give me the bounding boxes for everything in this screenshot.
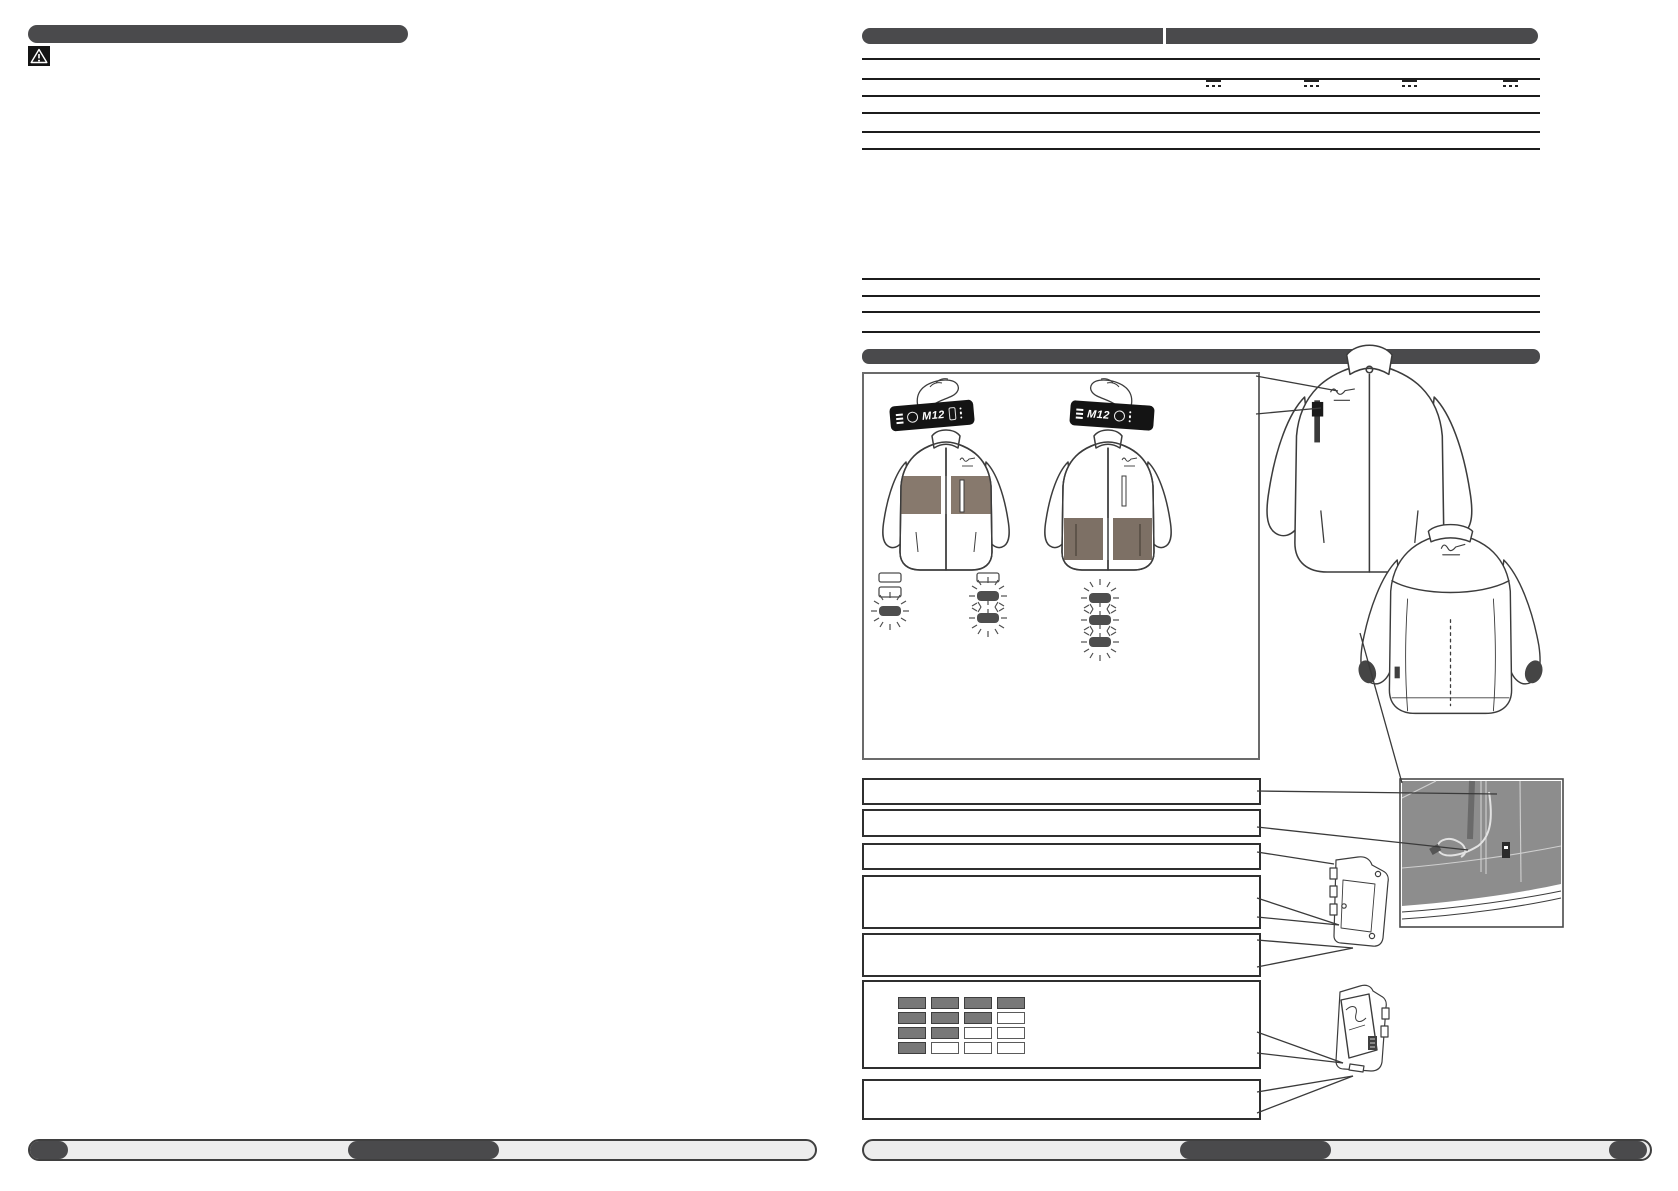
left-footer-mid-pill: [348, 1141, 499, 1159]
led-cell: [997, 1012, 1025, 1024]
figure-box: [862, 372, 1260, 760]
table-rule: [862, 148, 1540, 150]
led-cell: [898, 1027, 926, 1039]
led-cell: [964, 1027, 992, 1039]
led-cell: [964, 1012, 992, 1024]
warning-triangle-icon: [28, 46, 50, 66]
right-footer-end-pill: [1609, 1141, 1647, 1159]
table-rule: [862, 295, 1540, 297]
led-cell: [997, 997, 1025, 1009]
led-cell: [964, 1042, 992, 1054]
battery-gauge-icon: [1076, 408, 1084, 418]
milwaukee-logo-icon: [1331, 389, 1355, 394]
table-rule: [862, 58, 1540, 60]
led-grid: [898, 997, 1025, 1054]
dc-voltage-symbol: [1402, 80, 1417, 90]
leader-lines: [1256, 376, 1497, 1113]
m12-logo: M12: [922, 408, 946, 422]
cord-plug-icon: [1429, 844, 1441, 855]
callout-box-5: [862, 933, 1261, 977]
table-rule: [862, 278, 1540, 280]
led-cell: [997, 1042, 1025, 1054]
left-page-title-bar: [28, 25, 408, 43]
m12-logo: M12: [1087, 408, 1111, 422]
led-cell: [931, 1012, 959, 1024]
right-page-header-bar-left: [862, 28, 1163, 44]
led-cell: [931, 1042, 959, 1054]
led-cell: [931, 997, 959, 1009]
m12-tag-icon: [1368, 1036, 1377, 1050]
milwaukee-logo-icon: [1441, 544, 1464, 550]
left-footer-end-pill: [30, 1141, 68, 1159]
table-rule: [862, 311, 1540, 313]
figure-artwork: [0, 0, 1678, 1191]
controller-in-pocket-icon: [1312, 402, 1323, 417]
led-cell: [931, 1027, 959, 1039]
jacket-front-large: [1267, 345, 1472, 572]
inner-pocket-detail-panel: [1400, 779, 1563, 927]
table-rule: [862, 95, 1540, 97]
power-cord-icon: [1438, 792, 1491, 857]
callout-box-1: [862, 778, 1261, 805]
led-cell: [898, 1042, 926, 1054]
milwaukee-logo-icon: [1346, 1007, 1366, 1022]
power-button-icon: [907, 411, 919, 423]
led-dots-icon: [959, 407, 962, 419]
cuff-dark-right: [1522, 658, 1545, 685]
battery-gauge-icon: [896, 413, 904, 424]
callout-box-4: [862, 875, 1261, 929]
indicator-window-icon: [948, 407, 956, 421]
led-cell: [997, 1027, 1025, 1039]
connector-icon: [1502, 842, 1510, 858]
led-cell: [898, 1012, 926, 1024]
led-cell: [898, 997, 926, 1009]
jacket-back: [1356, 525, 1546, 714]
led-dots-icon: [1128, 411, 1131, 423]
callout-box-3: [862, 843, 1261, 870]
callout-box-7: [862, 1079, 1261, 1120]
callout-box-2: [862, 809, 1261, 837]
led-cell: [964, 997, 992, 1009]
manual-spread: M12 M12: [0, 0, 1678, 1191]
table-rule: [862, 112, 1540, 114]
cuff-dark-left: [1356, 658, 1379, 685]
table-rule: [862, 78, 1540, 80]
dc-voltage-symbol: [1304, 80, 1319, 90]
table-rule: [862, 131, 1540, 133]
figure-section-bar: [862, 349, 1540, 364]
power-button-icon: [1114, 410, 1126, 422]
table-rule: [862, 331, 1540, 333]
right-page-header-bar-right: [1166, 28, 1538, 44]
battery-holder-with-battery: [1336, 985, 1389, 1072]
back-tag-icon: [1395, 667, 1400, 679]
battery-holder-empty: [1330, 857, 1388, 946]
dc-voltage-symbol: [1206, 80, 1221, 90]
dc-voltage-symbol: [1503, 80, 1518, 90]
right-footer-mid-pill: [1180, 1141, 1331, 1159]
